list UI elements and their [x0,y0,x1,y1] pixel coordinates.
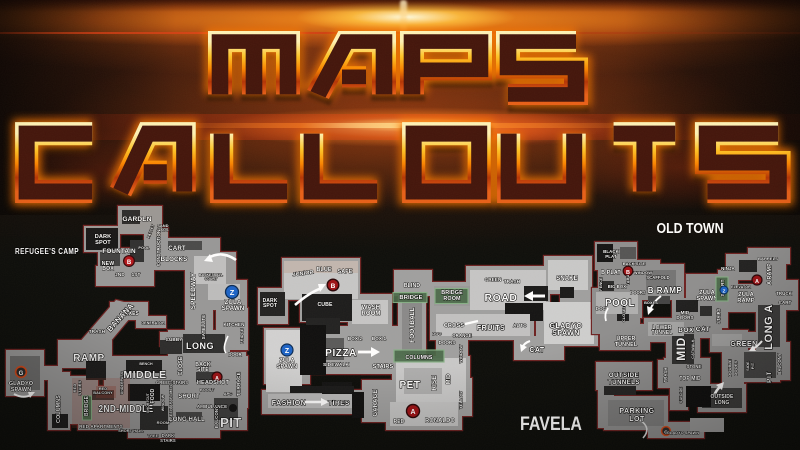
svg-text:SITE: SITE [197,367,209,373]
svg-text:GREEN APARTMENTS: GREEN APARTMENTS [169,380,173,422]
svg-text:BRIDGE: BRIDGE [399,295,422,301]
svg-text:Z: Z [230,288,235,297]
svg-text:SCAFFOLD: SCAFFOLD [646,275,670,280]
svg-text:PIZZA: PIZZA [325,348,356,359]
svg-text:WINDOW: WINDOW [161,394,165,411]
svg-text:CAT: CAT [529,347,545,354]
svg-text:TABU: TABU [626,275,630,286]
svg-text:FOOD: FOOD [150,388,156,403]
svg-text:PARKING: PARKING [619,408,654,415]
svg-text:FAVELA: FAVELA [520,414,582,435]
svg-text:BOXES: BOXES [644,301,658,305]
svg-text:DOG: DOG [432,331,441,336]
svg-text:NINJA: NINJA [721,266,735,271]
svg-text:FRIDGE: FRIDGE [240,328,244,343]
svg-text:TIRES: TIRES [328,400,350,407]
svg-text:TOP MID: TOP MID [679,376,701,382]
svg-text:DOORS: DOORS [439,340,456,345]
svg-text:PIT: PIT [220,415,242,430]
svg-text:GREEN: GREEN [485,277,502,282]
svg-text:PIT: PIT [750,362,755,369]
svg-text:GARAGE: GARAGE [373,390,379,417]
svg-text:BOX: BOX [678,327,694,334]
svg-text:TUNNELS: TUNNELS [608,380,640,386]
svg-text:BALCONY: BALCONY [93,391,113,395]
svg-text:GENERATOR: GENERATOR [141,321,165,325]
svg-text:Z: Z [285,348,290,355]
svg-text:A RAMP: A RAMP [767,263,773,285]
svg-text:GARDEN: GARDEN [122,216,151,223]
svg-text:STAIRS: STAIRS [373,364,394,370]
svg-text:REFUGEE'S CAMP: REFUGEE'S CAMP [15,247,79,256]
svg-text:FASHION: FASHION [272,400,307,407]
svg-text:KITCHEN: KITCHEN [223,322,245,327]
svg-text:AUTO: AUTO [513,323,527,329]
svg-text:GLADYO: GLADYO [550,323,583,330]
svg-text:BACK SITE: BACK SITE [623,261,646,266]
svg-text:CLOSE: CLOSE [178,356,184,375]
svg-text:LOT: LOT [629,416,645,423]
svg-text:WINDOW: WINDOW [458,345,463,363]
svg-text:ROOM: ROOM [157,420,170,425]
svg-text:SPOT: SPOT [95,240,111,246]
svg-text:BOX: BOX [102,266,114,272]
svg-text:RISE: RISE [431,375,438,391]
svg-text:ROOM: ROOM [443,296,461,302]
svg-text:COURT: COURT [205,277,218,281]
svg-text:LONG HALL: LONG HALL [169,417,205,423]
svg-text:SATELLITE: SATELLITE [201,315,206,339]
svg-text:SNAKE: SNAKE [556,276,578,282]
svg-text:UNDERPASS: UNDERPASS [120,371,124,394]
svg-text:BALCONY: BALCONY [214,406,219,428]
svg-text:OUTSIDE: OUTSIDE [609,373,639,379]
svg-text:ELEVATOR: ELEVATOR [731,285,751,289]
svg-text:CAT: CAT [696,326,710,333]
svg-text:FOUNTAIN: FOUNTAIN [102,248,136,255]
svg-text:STAIRS: STAIRS [77,380,82,395]
svg-text:BOOST: BOOST [200,388,215,392]
svg-text:BARRELS: BARRELS [758,256,778,261]
svg-text:LONG A: LONG A [763,304,775,349]
svg-text:DOUBLE: DOUBLE [727,359,732,377]
svg-text:AMBULANCE: AMBULANCE [197,404,228,409]
svg-text:DOORS: DOORS [733,360,738,375]
svg-text:TUNNEL: TUNNEL [615,342,638,348]
svg-text:DOORS: DOORS [676,315,693,320]
svg-text:SUICIDE: SUICIDE [679,387,683,403]
svg-text:SPAWN: SPAWN [277,364,298,370]
svg-text:DOG: DOG [596,306,607,311]
svg-text:FENCE: FENCE [599,277,603,291]
svg-text:Z: Z [723,289,726,294]
svg-text:TREE: TREE [148,434,159,438]
svg-text:SHORT: SHORT [178,394,200,400]
svg-text:YELLOW: YELLOW [458,391,463,409]
svg-text:APC: APC [224,392,232,396]
svg-text:POOL: POOL [605,298,635,309]
svg-text:BOX 1: BOX 1 [372,336,387,341]
svg-text:TERRACE: TERRACE [236,371,242,396]
svg-text:SIDEWALK: SIDEWALK [323,362,350,368]
svg-text:ORANGE: ORANGE [452,333,472,338]
svg-text:B RAMP: B RAMP [648,286,683,295]
svg-text:DOORS: DOORS [630,290,646,295]
svg-text:SPAWN: SPAWN [696,296,717,302]
svg-text:RAMP: RAMP [737,298,755,304]
svg-text:G: G [19,371,24,377]
svg-text:SHORT HALL: SHORT HALL [118,429,144,433]
svg-text:SPEEDWAY: SPEEDWAY [190,272,197,309]
svg-text:SPOT: SPOT [263,303,277,309]
svg-text:TRASH: TRASH [663,368,668,383]
svg-text:DOOR: DOOR [228,352,242,357]
svg-text:GLADYO SPAWN: GLADYO SPAWN [667,431,699,435]
svg-text:CROSS: CROSS [444,323,465,329]
svg-text:BLIND: BLIND [404,283,421,289]
svg-text:COLUMNS: COLUMNS [406,355,433,361]
svg-text:BLUE: BLUE [316,267,331,273]
svg-text:RED: RED [394,419,405,425]
svg-text:BIG BOX: BIG BOX [608,284,626,289]
svg-text:CART: CART [779,300,792,305]
svg-text:B PLAT: B PLAT [601,270,621,276]
svg-text:LONG: LONG [186,341,214,351]
svg-text:STAIRS: STAIRS [716,308,721,324]
svg-text:CUBBY: CUBBY [166,337,183,342]
svg-text:TUNNEL: TUNNEL [652,330,673,336]
svg-text:ROAD: ROAD [485,292,518,304]
svg-text:SPAWN: SPAWN [552,330,580,337]
svg-text:OLD TOWN: OLD TOWN [657,221,724,237]
svg-text:PLAT: PLAT [605,254,617,259]
svg-text:POOL: POOL [138,246,150,250]
svg-text:FRUITS: FRUITS [477,325,505,332]
svg-text:RED APARTMENTS: RED APARTMENTS [79,424,123,429]
svg-text:ROOM: ROOM [361,311,380,317]
svg-text:RAMP: RAMP [73,353,104,364]
svg-text:A: A [755,279,759,285]
svg-text:SHORTCUT: SHORTCUT [146,392,150,412]
svg-text:B: B [331,283,336,290]
svg-text:2ND: 2ND [115,272,125,277]
svg-text:BENCH: BENCH [139,362,153,366]
svg-text:TRASH: TRASH [504,279,521,284]
svg-text:TRASH: TRASH [89,329,106,334]
svg-text:SAFE: SAFE [338,269,353,275]
svg-text:STAIRS: STAIRS [160,438,176,443]
svg-text:CLOSET: CLOSET [622,305,626,322]
svg-text:HEADSHOT: HEADSHOT [197,380,230,386]
svg-text:BALCONY: BALCONY [777,353,782,375]
svg-text:CUBE: CUBE [317,302,333,308]
svg-text:A: A [410,409,415,416]
svg-text:PET: PET [400,380,421,391]
svg-text:MID: MID [674,337,688,361]
svg-text:PIT: PIT [766,371,773,383]
svg-text:MID: MID [446,374,452,385]
svg-text:1ST: 1ST [132,272,141,277]
svg-text:RONALDO: RONALDO [425,418,455,424]
svg-text:STONE: STONE [687,364,702,369]
svg-text:LONG: LONG [715,400,730,406]
svg-text:CART: CART [168,245,186,252]
svg-text:TRUCK: TRUCK [776,291,793,296]
svg-text:SPAWN: SPAWN [222,305,245,312]
svg-text:BOX 2: BOX 2 [348,336,363,341]
svg-text:BLOCKS: BLOCKS [161,256,188,263]
svg-text:CATWALK: CATWALK [691,339,695,359]
svg-text:FOOTBALL: FOOTBALL [409,307,416,343]
svg-text:BRIDGE: BRIDGE [84,395,90,416]
svg-text:COLUMNS: COLUMNS [56,395,62,423]
svg-text:B: B [127,260,132,266]
